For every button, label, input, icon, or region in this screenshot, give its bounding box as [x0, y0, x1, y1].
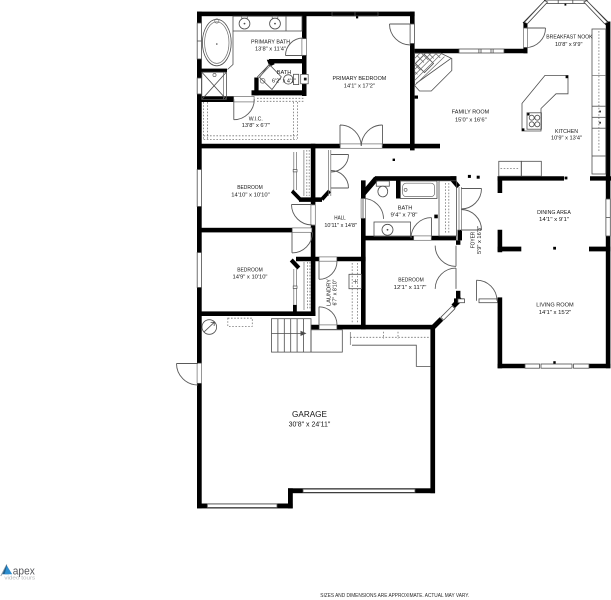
- svg-text:HALL: HALL: [334, 215, 346, 221]
- svg-text:10'9" x 13'4": 10'9" x 13'4": [551, 135, 582, 141]
- svg-text:LAUNDRY: LAUNDRY: [327, 279, 333, 306]
- svg-text:9'4" x 7'8": 9'4" x 7'8": [391, 213, 418, 219]
- svg-text:BREAKFAST NOOK: BREAKFAST NOOK: [546, 35, 592, 41]
- svg-text:LIVING ROOM: LIVING ROOM: [536, 302, 574, 308]
- svg-text:14'1" x 17'2": 14'1" x 17'2": [344, 83, 375, 89]
- svg-text:14'9" x 10'10": 14'9" x 10'10": [233, 275, 268, 281]
- svg-text:14'1" x 15'2": 14'1" x 15'2": [539, 310, 572, 316]
- svg-text:PRIMARY BATH: PRIMARY BATH: [251, 40, 290, 46]
- svg-text:13'8" x 11'4": 13'8" x 11'4": [255, 46, 286, 52]
- svg-text:FOYER: FOYER: [471, 232, 477, 249]
- svg-text:BEDROOM: BEDROOM: [398, 277, 424, 283]
- svg-text:BEDROOM: BEDROOM: [237, 185, 263, 191]
- svg-text:BATH: BATH: [277, 70, 292, 76]
- svg-text:video tours: video tours: [4, 576, 35, 582]
- svg-text:6'2" x 4'1": 6'2" x 4'1": [272, 79, 296, 85]
- svg-text:30'8" x 24'11": 30'8" x 24'11": [289, 419, 331, 428]
- svg-text:W.I.C.: W.I.C.: [249, 116, 263, 122]
- svg-text:PRIMARY BEDROOM: PRIMARY BEDROOM: [333, 76, 387, 82]
- svg-text:10'8" x 9'9": 10'8" x 9'9": [555, 42, 583, 48]
- svg-text:14'1" x 9'1": 14'1" x 9'1": [539, 217, 569, 223]
- svg-text:GARAGE: GARAGE: [292, 410, 327, 419]
- svg-text:FAMILY ROOM: FAMILY ROOM: [452, 110, 490, 116]
- svg-text:12'1" x 11'7": 12'1" x 11'7": [394, 285, 427, 291]
- svg-text:5'9" x 16'3": 5'9" x 16'3": [477, 226, 483, 254]
- svg-text:BATH: BATH: [398, 206, 413, 212]
- svg-text:DINING AREA: DINING AREA: [537, 210, 571, 216]
- svg-text:6'7" x 8'10": 6'7" x 8'10": [333, 280, 339, 306]
- svg-text:14'10" x 10'10": 14'10" x 10'10": [231, 193, 270, 199]
- svg-text:15'0" x 16'6": 15'0" x 16'6": [455, 118, 487, 124]
- svg-text:10'11" x 14'8": 10'11" x 14'8": [324, 223, 357, 229]
- svg-text:13'8" x 6'7": 13'8" x 6'7": [242, 123, 270, 129]
- svg-text:SIZES AND DIMENSIONS ARE APPRO: SIZES AND DIMENSIONS ARE APPROXIMATE. AC…: [320, 593, 469, 599]
- svg-text:KITCHEN: KITCHEN: [555, 129, 578, 135]
- svg-text:BEDROOM: BEDROOM: [237, 267, 263, 273]
